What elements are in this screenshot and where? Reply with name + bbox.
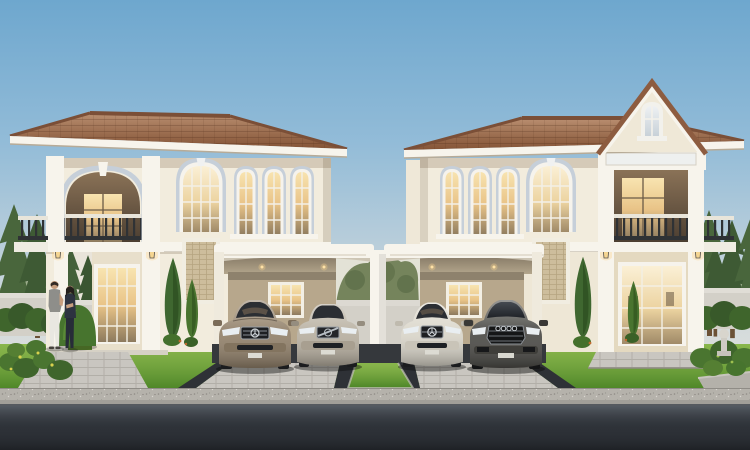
car4-plate <box>498 353 514 358</box>
sidewalk <box>0 388 750 402</box>
car1-grille <box>241 327 269 339</box>
car2-grille <box>317 327 339 338</box>
right-sliding-door <box>618 262 686 346</box>
architectural-rendering <box>0 0 750 450</box>
right-narrow-window-3 <box>496 166 520 236</box>
car3-grille <box>421 326 443 338</box>
carport-downlight-2 <box>320 263 327 270</box>
right-porch-pilaster-2 <box>688 252 704 352</box>
right-narrow-window-2 <box>468 166 492 236</box>
car4-grille <box>487 326 525 344</box>
car4-mirror-left <box>464 320 473 326</box>
gable-window <box>641 102 663 136</box>
car4-mirror-right <box>539 320 548 326</box>
carport-downlight-4 <box>490 263 497 270</box>
car2-mirror-left <box>291 321 299 326</box>
carport-beam-right <box>384 244 544 258</box>
left-narrow-window-2 <box>262 166 286 236</box>
carport-beam-left <box>214 244 374 258</box>
left-french-door <box>94 264 140 344</box>
car1-plate <box>248 353 262 358</box>
street <box>0 388 750 450</box>
carport-downlight-1 <box>258 263 265 270</box>
car1-mirror-left <box>213 320 222 326</box>
right-porch-pilaster-1 <box>598 252 614 352</box>
left-balcony-railing <box>64 218 142 238</box>
left-porch-pilaster <box>142 252 160 352</box>
car3-mirror-left <box>395 321 403 326</box>
left-narrow-window-1 <box>234 166 258 236</box>
right-balcony-railing <box>608 218 696 238</box>
right-tall-arched-window <box>526 155 576 232</box>
carport-downlight-3 <box>428 263 435 270</box>
car2-plate <box>321 350 335 355</box>
left-narrow-window-3 <box>290 166 314 236</box>
right-narrow-window-1 <box>440 166 464 236</box>
car2-mirror-right <box>357 321 365 326</box>
left-tall-arched-window <box>176 155 226 232</box>
car3-plate <box>425 350 439 355</box>
scene-canvas <box>0 0 750 450</box>
